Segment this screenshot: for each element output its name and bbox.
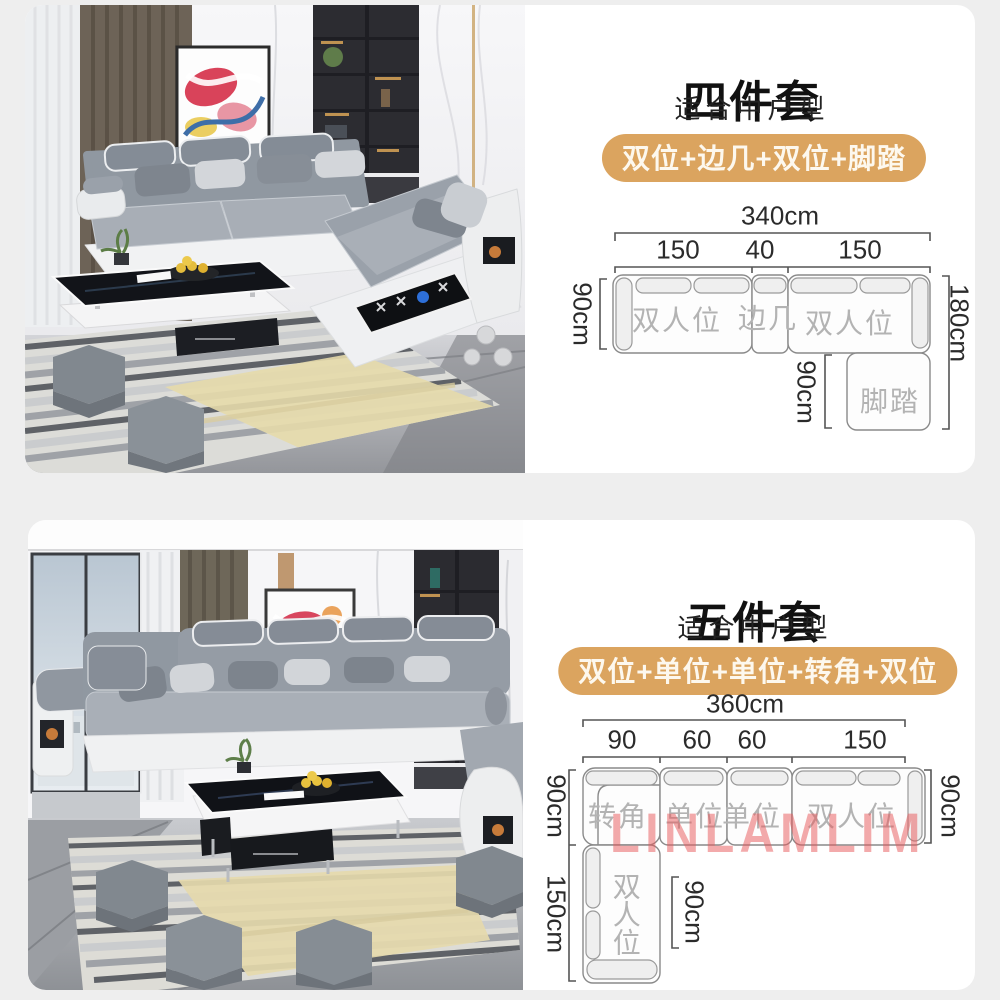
- right-span-label: 180cm: [944, 284, 975, 362]
- segment-width-label: 60: [738, 725, 767, 756]
- ottoman-depth-label: 90cm: [791, 360, 822, 424]
- left-depth-label: 90cm: [567, 282, 598, 346]
- section-label: 边几: [738, 297, 798, 337]
- segment-width-label: 60: [683, 725, 712, 756]
- ottoman-label: 脚踏: [860, 380, 920, 420]
- segment-width-label: 90: [608, 725, 637, 756]
- living-room-photo-1: [25, 5, 525, 473]
- left-chaise-length-label: 150cm: [541, 875, 572, 953]
- segment-width-label: 150: [656, 235, 699, 266]
- dimension-diagram-4pc: 340cm 150 40 150 90cm 180cm 90cm 双人位 边几 …: [560, 195, 975, 445]
- section-label: 双人位: [632, 299, 722, 339]
- segment-width-label: 150: [838, 235, 881, 266]
- total-width-label: 360cm: [706, 689, 784, 720]
- set-subtitle: 适合中户型: [674, 89, 829, 126]
- four-piece-set-card: 四件套 适合中户型 双位+边几+双位+脚踏: [25, 5, 975, 473]
- set-subtitle: 适合中户型: [677, 608, 832, 645]
- brand-watermark: LINLAMLIM: [610, 801, 926, 866]
- living-room-photo-2: [28, 520, 523, 990]
- chaise-section-label: 双人位: [610, 872, 639, 956]
- segment-width-label: 40: [746, 235, 775, 266]
- segment-width-label: 150: [843, 725, 886, 756]
- right-depth-label: 90cm: [935, 774, 966, 838]
- total-width-label: 340cm: [741, 201, 819, 232]
- product-sheet: 四件套 适合中户型 双位+边几+双位+脚踏: [0, 0, 1000, 1000]
- composition-badge: 双位+边几+双位+脚踏: [602, 134, 926, 182]
- five-piece-set-card: 五件套 适合中户型 双位+单位+单位+转角+双位: [28, 520, 975, 990]
- section-label: 双人位: [805, 302, 895, 342]
- chaise-inner-depth-label: 90cm: [679, 880, 710, 944]
- left-depth-label: 90cm: [541, 774, 572, 838]
